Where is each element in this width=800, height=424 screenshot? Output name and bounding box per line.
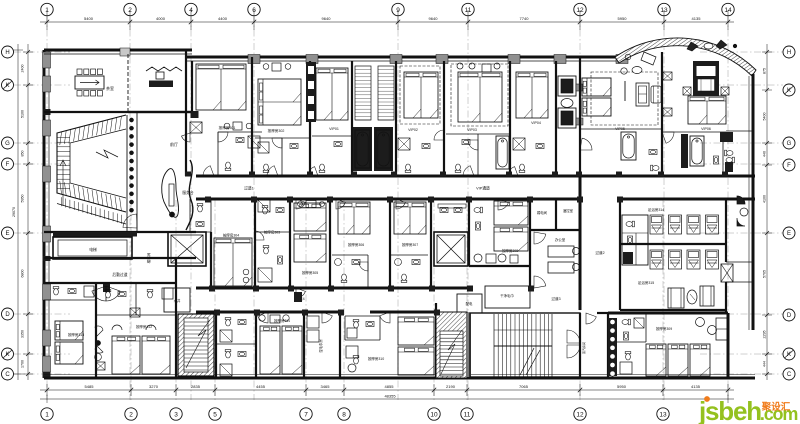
- svg-text:2835: 2835: [191, 384, 201, 389]
- svg-text:5950: 5950: [618, 16, 628, 21]
- svg-text:5: 5: [213, 411, 217, 418]
- svg-text:875: 875: [763, 68, 767, 74]
- svg-text:VIP02: VIP02: [408, 128, 418, 132]
- svg-text:5950: 5950: [21, 195, 25, 203]
- svg-text:440: 440: [763, 151, 767, 157]
- svg-text:按摩房302: 按摩房302: [268, 128, 285, 133]
- svg-text:过道2: 过道2: [595, 250, 604, 255]
- svg-text:过道1: 过道1: [244, 186, 254, 191]
- svg-text:后勤过道: 后勤过道: [112, 272, 127, 277]
- svg-text:5100: 5100: [21, 110, 25, 118]
- svg-text:4135: 4135: [692, 16, 702, 21]
- svg-text:10: 10: [430, 411, 438, 418]
- svg-text:聚设汇: 聚设汇: [761, 401, 791, 413]
- svg-text:楼梯间: 楼梯间: [146, 252, 151, 263]
- svg-text:4855: 4855: [385, 384, 395, 389]
- svg-text:5400: 5400: [84, 16, 94, 21]
- svg-text:11: 11: [464, 411, 471, 418]
- svg-text:4400: 4400: [218, 16, 228, 21]
- svg-text:9: 9: [396, 7, 400, 14]
- svg-text:配电: 配电: [466, 301, 473, 306]
- svg-text:4455: 4455: [256, 384, 266, 389]
- svg-text:VIP06: VIP06: [701, 127, 711, 131]
- svg-text:1700: 1700: [21, 360, 25, 368]
- svg-text:茶室: 茶室: [106, 85, 114, 91]
- svg-text:2: 2: [129, 411, 133, 418]
- svg-text:2: 2: [128, 7, 132, 14]
- svg-text:前厅: 前厅: [170, 141, 178, 147]
- svg-text:VIP通道: VIP通道: [476, 186, 490, 191]
- svg-text:3270: 3270: [149, 384, 159, 389]
- svg-text:VIP01: VIP01: [329, 127, 339, 131]
- svg-text:5400: 5400: [763, 113, 767, 121]
- svg-text:C: C: [5, 372, 10, 378]
- svg-text:按摩房306: 按摩房306: [348, 242, 364, 247]
- svg-text:弱电间: 弱电间: [537, 210, 548, 215]
- svg-text:48355: 48355: [384, 393, 396, 398]
- svg-text:2190: 2190: [446, 384, 456, 389]
- svg-text:6: 6: [252, 7, 256, 14]
- svg-text:7: 7: [304, 411, 308, 418]
- svg-text:服务台: 服务台: [182, 190, 194, 195]
- svg-text:4135: 4135: [691, 384, 701, 389]
- svg-text:5950: 5950: [617, 384, 627, 389]
- svg-text:13: 13: [660, 7, 668, 14]
- svg-text:F: F: [787, 163, 791, 169]
- svg-text:1: 1: [45, 7, 49, 14]
- svg-text:按摩房313: 按摩房313: [68, 332, 84, 337]
- svg-text:7740: 7740: [520, 16, 530, 21]
- svg-text:4000: 4000: [156, 16, 166, 21]
- svg-text:酒控室: 酒控室: [563, 208, 574, 213]
- svg-text:2295: 2295: [763, 331, 767, 339]
- svg-text:4100: 4100: [763, 195, 767, 203]
- svg-text:按摩房303: 按摩房303: [264, 230, 280, 235]
- svg-text:3: 3: [174, 411, 178, 418]
- svg-text:F: F: [6, 162, 10, 168]
- svg-text:水井: 水井: [174, 298, 181, 303]
- svg-text:13: 13: [659, 411, 667, 418]
- svg-text:D: D: [5, 312, 10, 318]
- svg-text:29070: 29070: [12, 207, 16, 217]
- svg-text:14: 14: [724, 7, 732, 14]
- svg-text:VIP03: VIP03: [467, 128, 477, 132]
- svg-text:足浴房315: 足浴房315: [638, 280, 654, 285]
- svg-text:7065: 7065: [519, 384, 529, 389]
- svg-text:按摩房304: 按摩房304: [223, 233, 239, 238]
- svg-text:电梯: 电梯: [89, 247, 97, 252]
- svg-text:E: E: [5, 231, 9, 237]
- svg-text:4: 4: [189, 7, 193, 14]
- svg-text:过道3: 过道3: [551, 296, 560, 301]
- svg-text:按摩房308: 按摩房308: [502, 248, 518, 253]
- svg-text:足浴房314: 足浴房314: [648, 207, 664, 212]
- svg-text:6800: 6800: [21, 270, 25, 278]
- svg-text:9640: 9640: [322, 16, 332, 21]
- svg-text:D: D: [787, 313, 792, 319]
- svg-text:2400: 2400: [21, 65, 25, 73]
- svg-text:E: E: [787, 231, 791, 237]
- svg-text:12: 12: [576, 411, 584, 418]
- svg-text:12: 12: [576, 7, 584, 14]
- svg-text:3465: 3465: [321, 384, 331, 389]
- svg-text:5765: 5765: [763, 270, 767, 278]
- svg-text:办公室: 办公室: [555, 237, 566, 242]
- svg-text:9640: 9640: [429, 16, 439, 21]
- svg-text:H: H: [5, 50, 9, 56]
- svg-text:VIP04: VIP04: [531, 121, 541, 125]
- svg-text:按摩房312: 按摩房312: [136, 324, 152, 329]
- svg-text:按摩房309: 按摩房309: [656, 326, 672, 331]
- svg-text:按摩房310: 按摩房310: [368, 356, 384, 361]
- svg-text:5485: 5485: [85, 384, 95, 389]
- svg-text:C: C: [787, 372, 792, 378]
- svg-text:H: H: [787, 50, 791, 56]
- svg-text:按摩房305: 按摩房305: [302, 270, 318, 275]
- svg-text:1: 1: [45, 411, 49, 418]
- svg-text:11: 11: [465, 7, 472, 14]
- svg-text:3350: 3350: [21, 330, 25, 338]
- svg-text:G: G: [787, 141, 792, 147]
- svg-text:444: 444: [763, 361, 767, 367]
- svg-text:按摩房307: 按摩房307: [402, 242, 418, 247]
- svg-text:8: 8: [342, 411, 346, 418]
- svg-text:干净毛巾: 干净毛巾: [500, 293, 514, 298]
- svg-text:850: 850: [21, 151, 25, 157]
- svg-text:G: G: [5, 141, 10, 147]
- svg-text:蒸汽房间: 蒸汽房间: [581, 342, 586, 354]
